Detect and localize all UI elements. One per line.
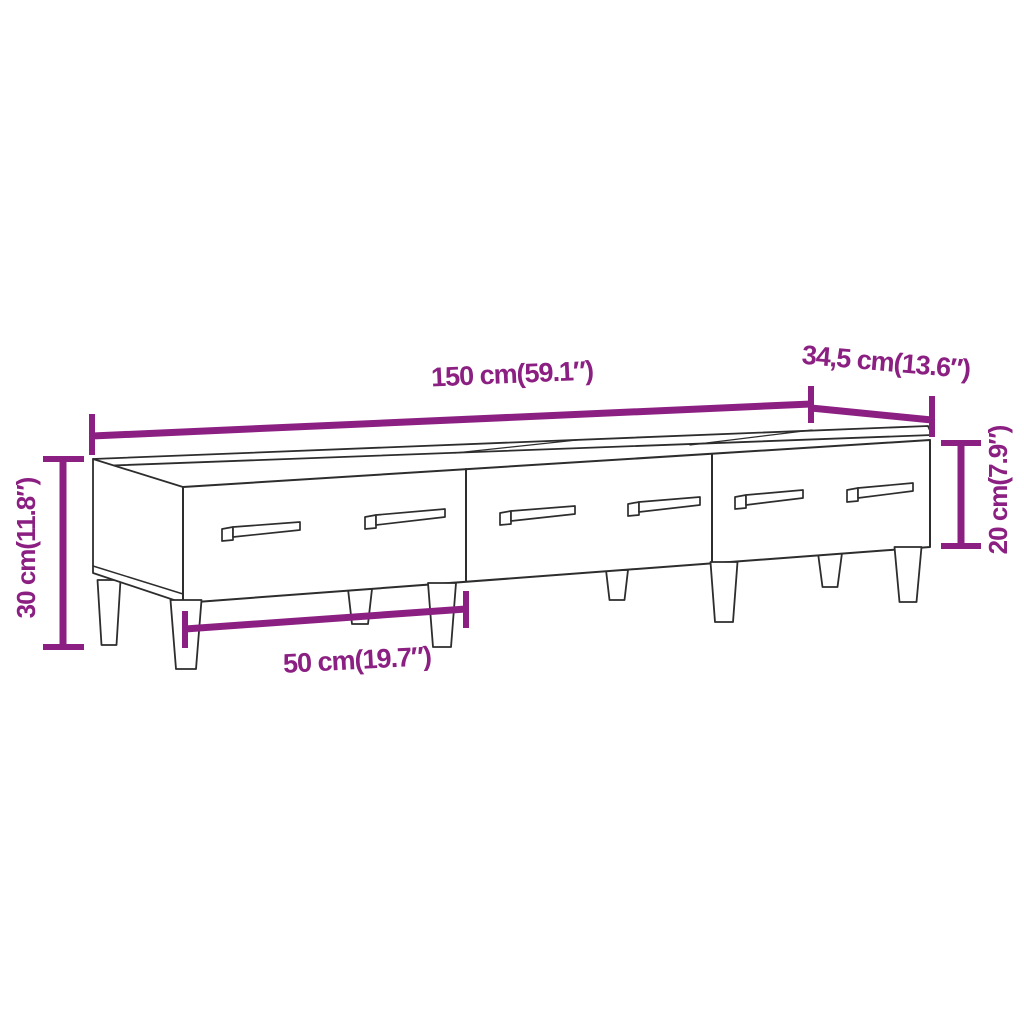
furniture-dimension-diagram: 150 cm(59.1″) 34,5 cm(13.6″) 20 cm(7.9″)… bbox=[0, 0, 1024, 1024]
handle-end-cap bbox=[628, 502, 639, 516]
handle-end-cap bbox=[365, 515, 376, 529]
drawer-width-dim-label: 50 cm(19.7″) bbox=[282, 641, 431, 679]
diagram-canvas: 150 cm(59.1″) 34,5 cm(13.6″) 20 cm(7.9″)… bbox=[0, 0, 1024, 1024]
body-height-dim-label: 20 cm(7.9″) bbox=[983, 425, 1013, 554]
cabinet-leg-front-2 bbox=[428, 583, 456, 647]
cabinet-leg-front-3 bbox=[711, 562, 738, 622]
cabinet-leg-back-3 bbox=[606, 570, 628, 600]
depth-dim-label: 34,5 cm(13.6″) bbox=[801, 340, 972, 385]
cabinet-leg-back-1 bbox=[98, 580, 121, 645]
depth-dim-line bbox=[811, 408, 932, 420]
handle-end-cap bbox=[735, 495, 746, 509]
cabinet-leg-back-4 bbox=[818, 553, 842, 587]
width-dim-label: 150 cm(59.1″) bbox=[430, 355, 593, 392]
cabinet-leg-front-4 bbox=[895, 547, 922, 602]
width-dim-line bbox=[92, 404, 811, 436]
drawer-width-dim-line bbox=[185, 609, 466, 629]
total-height-dim-label: 30 cm(11.8″) bbox=[11, 477, 41, 618]
cabinet-front-face bbox=[183, 440, 930, 603]
cabinet-drawing bbox=[93, 426, 932, 669]
handle-end-cap bbox=[222, 527, 233, 541]
handle-end-cap bbox=[847, 488, 858, 502]
handle-end-cap bbox=[500, 511, 511, 525]
